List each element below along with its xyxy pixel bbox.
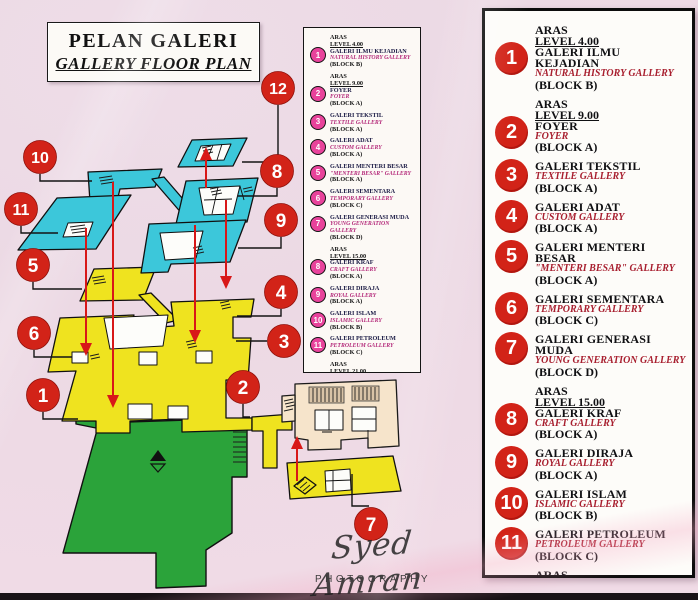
legend-entry-number-badge: 6 [495,292,528,325]
legend-entry-number-badge: 5 [495,240,528,273]
legend-entry-text: GALERI GENERASI MUDA YOUNG GENERATION GA… [330,215,416,242]
legend-entry-block: (BLOCK A) [535,223,624,234]
legend-entry-text: GALERI TEKSTIL TEXTILE GALLERY (BLOCK A) [330,113,383,133]
legend-entry: 5 GALERI MENTERI BESAR "MENTERI BESAR" G… [310,164,416,184]
legend-entry: 8 ARAS LEVEL 15.00 GALERI KRAF CRAFT GAL… [495,384,686,441]
legend-entry-name-malay: GALERI SEMENTARA [330,189,395,196]
legend-entry-block: (BLOCK C) [330,350,396,357]
legend-entry: 7 GALERI GENERASI MUDA YOUNG GENERATION … [310,215,416,242]
legend-entry-number-badge: 4 [495,200,528,233]
legend-entry-name-malay: GALERI DIRAJA [330,286,379,293]
legend-entry-number-badge: 11 [495,527,528,560]
legend-entry-number-badge: 9 [310,287,326,303]
plan-marker-8: 8 [261,155,294,188]
legend-entry: 1 ARAS LEVEL 4.00 GALERI ILMU KEJADIAN N… [310,35,416,69]
legend-entry-name-malay: GALERI KRAF [535,408,622,419]
legend-entry: 5 GALERI MENTERI BESAR "MENTERI BESAR" G… [495,240,686,286]
plan-marker-4: 4 [265,276,298,309]
legend-entry-number-badge: 3 [310,114,326,130]
plan-marker-number: 11 [13,202,30,219]
legend-entry: 4 GALERI ADAT CUSTOM GALLERY (BLOCK A) [495,200,686,235]
legend-entry-block: (BLOCK C) [330,203,395,210]
plan-marker-1: 1 [27,379,60,412]
legend-entry-name-malay: GALERI TEKSTIL [330,113,383,120]
plan-marker-number: 9 [276,211,287,232]
plan-marker-number: 8 [272,162,283,183]
plan-marker-number: 5 [28,256,39,277]
legend-entry-text: GALERI ISLAM ISLAMIC GALLERY (BLOCK B) [535,487,627,522]
legend-entry-number-badge: 10 [495,487,528,520]
legend-entry-number-badge: 3 [495,159,528,192]
legend-entry: 2 ARAS LEVEL 9.00 FOYER FOYER (BLOCK A) [310,74,416,108]
legend-entry-text: GALERI PETROLEUM PETROLEUM GALLERY (BLOC… [330,336,396,356]
plan-marker-number: 4 [276,283,287,304]
plan-marker-3: 3 [268,325,301,358]
legend-entry-text: GALERI ADAT CUSTOM GALLERY (BLOCK A) [330,138,382,158]
photographer-signature: Syed Amran [266,521,473,607]
legend-entry-block: (BLOCK A) [535,183,641,194]
legend-panel-small: 1 ARAS LEVEL 4.00 GALERI ILMU KEJADIAN N… [303,27,421,373]
legend-entry-name-malay: GALERI ILMU KEJADIAN [330,49,410,56]
legend-entry-block: (BLOCK A) [330,299,379,306]
plan-marker-5: 5 [17,249,50,282]
plan-marker-number: 3 [279,332,290,353]
legend-entry: 9 GALERI DIRAJA ROYAL GALLERY (BLOCK A) [310,286,416,306]
legend-entry-text: ARAS LEVEL 9.00 FOYER FOYER (BLOCK A) [535,97,599,154]
legend-entry: 6 GALERI SEMENTARA TEMPORARY GALLERY (BL… [495,292,686,327]
legend-entry-block: (BLOCK B) [535,80,686,91]
legend-entry: 11 GALERI PETROLEUM PETROLEUM GALLERY (B… [495,527,686,562]
floor-plate-green-ground [63,418,247,588]
legend-entry-text: GALERI TEKSTIL TEXTILE GALLERY (BLOCK A) [535,159,641,194]
plan-marker-number: 2 [238,378,249,399]
legend-entry-text: GALERI MENTERI BESAR "MENTERI BESAR" GAL… [330,164,411,184]
legend-entry-text: ARAS LEVEL 15.00 GALERI KRAF CRAFT GALLE… [330,247,377,281]
legend-entry-block: (BLOCK A) [330,177,411,184]
legend-entry-number-badge: 4 [310,139,326,155]
legend-entry-name-malay: GALERI PETROLEUM [330,336,396,343]
legend-entry-block: (BLOCK B) [330,62,410,69]
legend-entry: 3 GALERI TEKSTIL TEXTILE GALLERY (BLOCK … [495,159,686,194]
legend-entry-name-malay: GALERI MENTERI BESAR [330,164,411,171]
legend-entry-number-badge: 5 [310,165,326,181]
legend-entry-name-malay: GALERI ISLAM [535,489,627,500]
legend-entry-name-malay: GALERI KRAF [330,260,377,267]
legend-entry-number-badge: 11 [310,337,326,353]
legend-entry-block: (BLOCK B) [330,325,382,332]
legend-entry-number-badge: 10 [310,312,326,328]
legend-entry-block: (BLOCK A) [535,275,686,286]
plan-marker-6: 6 [18,317,51,350]
gallery-floor-plan-poster: 123456789101112 PELAN GALERI GALLERY FLO… [0,0,698,600]
plan-marker-11: 11 [5,193,38,226]
legend-entry-block: (BLOCK A) [535,470,633,481]
legend-entry-number-badge: 8 [495,403,528,436]
legend-entry-name-malay: GALERI SEMENTARA [535,294,664,305]
legend-entry-number-badge: 2 [310,86,326,102]
plan-marker-number: 6 [29,324,40,345]
legend-entry-number-badge: 1 [310,47,326,63]
plan-marker-number: 10 [31,150,49,167]
plan-marker-2: 2 [227,371,260,404]
legend-entry-aras: ARAS [535,570,644,579]
legend-entry-number-badge: 8 [310,259,326,275]
building-block-d-cream [282,380,399,450]
legend-entry-block: (BLOCK D) [535,367,686,378]
legend-entry-block: (BLOCK C) [535,551,666,562]
legend-entry: 1 ARAS LEVEL 4.00 GALERI ILMU KEJADIAN N… [495,23,686,91]
legend-entry-block: (BLOCK A) [535,429,622,440]
legend-entry-block: (BLOCK C) [535,315,664,326]
legend-entry-name-malay: GALERI GENERASI MUDA [330,215,416,222]
legend-entry-name-en: YOUNG GENERATION GALLERY [330,221,416,235]
legend-entry: 8 ARAS LEVEL 15.00 GALERI KRAF CRAFT GAL… [310,247,416,281]
legend-entry-number-badge: 9 [495,446,528,479]
legend-entry-text: GALERI SEMENTARA TEMPORARY GALLERY (BLOC… [330,189,395,209]
legend-entry-block: (BLOCK A) [535,142,599,153]
legend-entry: 7 GALERI GENERASI MUDA YOUNG GENERATION … [495,332,686,378]
legend-entry: 4 GALERI ADAT CUSTOM GALLERY (BLOCK A) [310,138,416,158]
legend-entry-text: ARAS LEVEL 21.00 GALERI SEJARAH HISTORY … [535,568,644,579]
legend-entry-block: (BLOCK B) [535,510,627,521]
legend-entry: 12 ARAS LEVEL 21.00 GALERI SEJARAH HISTO… [310,362,416,373]
legend-entry-number-badge: 6 [310,190,326,206]
legend-entry: 3 GALERI TEKSTIL TEXTILE GALLERY (BLOCK … [310,113,416,133]
legend-entry-number-badge: 7 [310,216,326,232]
legend-entry-text: GALERI PETROLEUM PETROLEUM GALLERY (BLOC… [535,527,666,562]
legend-entry-name-malay: GALERI GENERASI MUDA [535,334,686,356]
legend-entry-number-badge: 1 [495,42,528,75]
legend-entry-name-malay: FOYER [535,121,599,132]
legend-entry-name-malay: GALERI MENTERI BESAR [535,242,686,264]
legend-entry-block: (BLOCK A) [330,101,363,108]
legend-entry-block: (BLOCK A) [330,127,383,134]
plan-marker-number: 1 [38,386,49,407]
legend-entry-text: ARAS LEVEL 15.00 GALERI KRAF CRAFT GALLE… [535,384,622,441]
floor-plates-cyan-level15 [18,169,258,273]
legend-entry-text: GALERI ADAT CUSTOM GALLERY (BLOCK A) [535,200,624,235]
legend-entry-text: GALERI DIRAJA ROYAL GALLERY (BLOCK A) [535,446,633,481]
legend-entry-block: (BLOCK D) [330,235,416,242]
legend-entry-name-malay: GALERI ADAT [330,138,382,145]
legend-entry-level: LEVEL 21.00 [330,369,385,373]
plan-marker-10: 10 [24,141,57,174]
legend-panel-large: 1 ARAS LEVEL 4.00 GALERI ILMU KEJADIAN N… [482,8,695,578]
legend-entry-name-malay: GALERI ILMU KEJADIAN [535,47,686,69]
legend-entry-text: GALERI DIRAJA ROYAL GALLERY (BLOCK A) [330,286,379,306]
legend-entry: 11 GALERI PETROLEUM PETROLEUM GALLERY (B… [310,336,416,356]
legend-entry-name-malay: FOYER [330,88,363,95]
legend-entry-text: GALERI MENTERI BESAR "MENTERI BESAR" GAL… [535,240,686,286]
legend-entry: 6 GALERI SEMENTARA TEMPORARY GALLERY (BL… [310,189,416,209]
photography-label: PHOTOGRAPHY [288,574,458,585]
plan-marker-number: 12 [269,81,287,98]
legend-entry-name-malay: GALERI ISLAM [330,311,382,318]
legend-entry: 9 GALERI DIRAJA ROYAL GALLERY (BLOCK A) [495,446,686,481]
legend-entry-block: (BLOCK A) [330,152,382,159]
legend-entry-text: ARAS LEVEL 4.00 GALERI ILMU KEJADIAN NAT… [535,23,686,91]
legend-entry-number-badge: 2 [495,116,528,149]
legend-entry-number-badge: 7 [495,332,528,365]
floor-plate-cyan-level21 [178,138,247,167]
legend-entry-block: (BLOCK A) [330,274,377,281]
legend-entry-text: GALERI ISLAM ISLAMIC GALLERY (BLOCK B) [330,311,382,331]
plan-marker-12: 12 [262,72,295,105]
legend-entry: 10 GALERI ISLAM ISLAMIC GALLERY (BLOCK B… [495,487,686,522]
floor-plate-yellow-block-d [287,456,401,499]
legend-entry: 10 GALERI ISLAM ISLAMIC GALLERY (BLOCK B… [310,311,416,331]
plan-marker-9: 9 [265,204,298,237]
legend-entry-text: GALERI SEMENTARA TEMPORARY GALLERY (BLOC… [535,292,664,327]
legend-entry-text: ARAS LEVEL 9.00 FOYER FOYER (BLOCK A) [330,74,363,108]
legend-entry: 12 ARAS LEVEL 21.00 GALERI SEJARAH HISTO… [495,568,686,579]
legend-entry-text: ARAS LEVEL 4.00 GALERI ILMU KEJADIAN NAT… [330,35,410,69]
legend-entry-name-malay: GALERI ADAT [535,202,624,213]
legend-entry: 2 ARAS LEVEL 9.00 FOYER FOYER (BLOCK A) [495,97,686,154]
legend-entry-text: ARAS LEVEL 21.00 GALERI SEJARAH HISTORY … [330,362,385,373]
legend-entry-text: GALERI GENERASI MUDA YOUNG GENERATION GA… [535,332,686,378]
